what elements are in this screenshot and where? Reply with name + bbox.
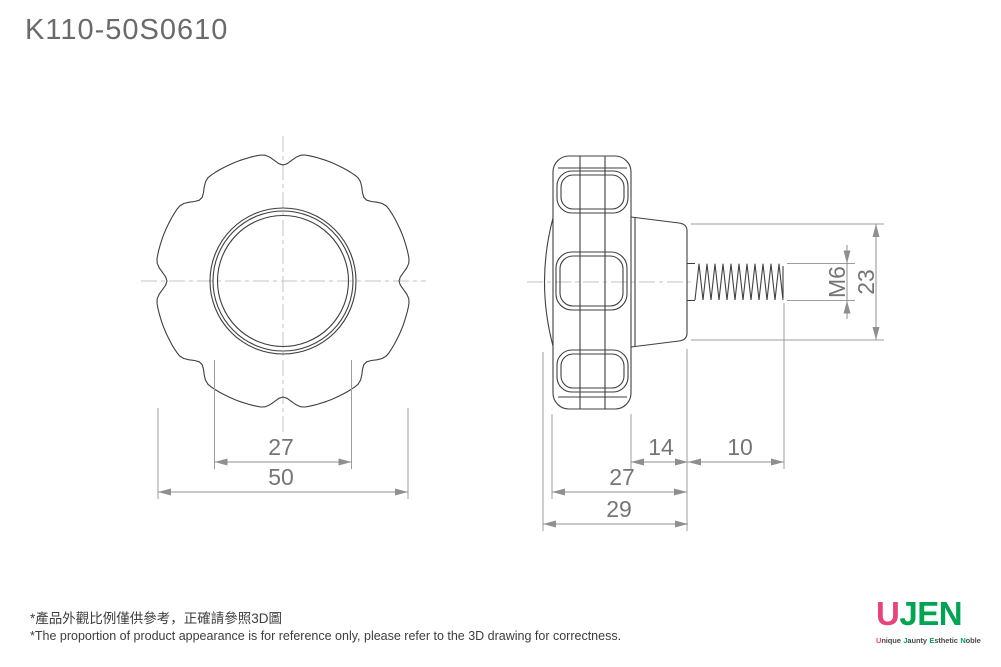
thread-zigzag xyxy=(695,264,783,300)
dim-text-front-50: 50 xyxy=(268,464,294,490)
logo-tagline: UniqueJauntyEstheticNoble xyxy=(876,630,976,648)
technical-drawing: 27 50 xyxy=(0,0,1001,667)
tagline-word: Unique xyxy=(876,636,901,645)
logo-letters-jen: JEN xyxy=(899,595,962,632)
note-chinese: *產品外觀比例僅供參考，正確請參照3D圖 xyxy=(30,611,621,628)
front-view: 27 50 xyxy=(141,136,426,499)
drawing-sheet: K110-50S0610 27 xyxy=(0,0,1001,667)
lobe-bottom-inner xyxy=(561,354,624,388)
dim-text-side-10: 10 xyxy=(727,434,753,460)
tagline-word: Noble xyxy=(960,636,980,645)
dim-text-side-23: 23 xyxy=(853,269,879,295)
dim-text-side-27: 27 xyxy=(609,464,635,490)
lobe-bottom xyxy=(557,350,628,392)
dim-text-side-29: 29 xyxy=(606,496,632,522)
dim-text-thread-size: M6 xyxy=(824,266,850,298)
lobe-middle-inner xyxy=(560,256,623,306)
side-dim-10: 10 xyxy=(688,303,784,469)
lobe-top-inner xyxy=(561,175,624,209)
dim-text-side-14: 14 xyxy=(648,434,674,460)
note-english: *The proportion of product appearance is… xyxy=(30,628,621,645)
logo-letter-u: U xyxy=(876,595,899,632)
front-dim-27: 27 xyxy=(215,360,352,469)
side-view: 14 10 27 29 xyxy=(527,156,884,531)
side-dim-m6: M6 xyxy=(787,245,855,319)
lobe-top xyxy=(557,171,628,213)
side-dim-23: 23 xyxy=(691,224,884,340)
tagline-word: Jaunty xyxy=(903,636,927,645)
footer-notes: *產品外觀比例僅供參考，正確請參照3D圖 *The proportion of … xyxy=(30,611,621,645)
tagline-word: Esthetic xyxy=(929,636,957,645)
logo-wordmark: UJEN xyxy=(876,601,976,627)
lobe-middle xyxy=(556,252,627,310)
side-dim-14: 14 xyxy=(631,414,688,469)
dim-text-front-27: 27 xyxy=(268,434,294,460)
ujen-logo: UJEN UniqueJauntyEstheticNoble xyxy=(876,601,976,648)
front-centerlines xyxy=(141,136,426,436)
